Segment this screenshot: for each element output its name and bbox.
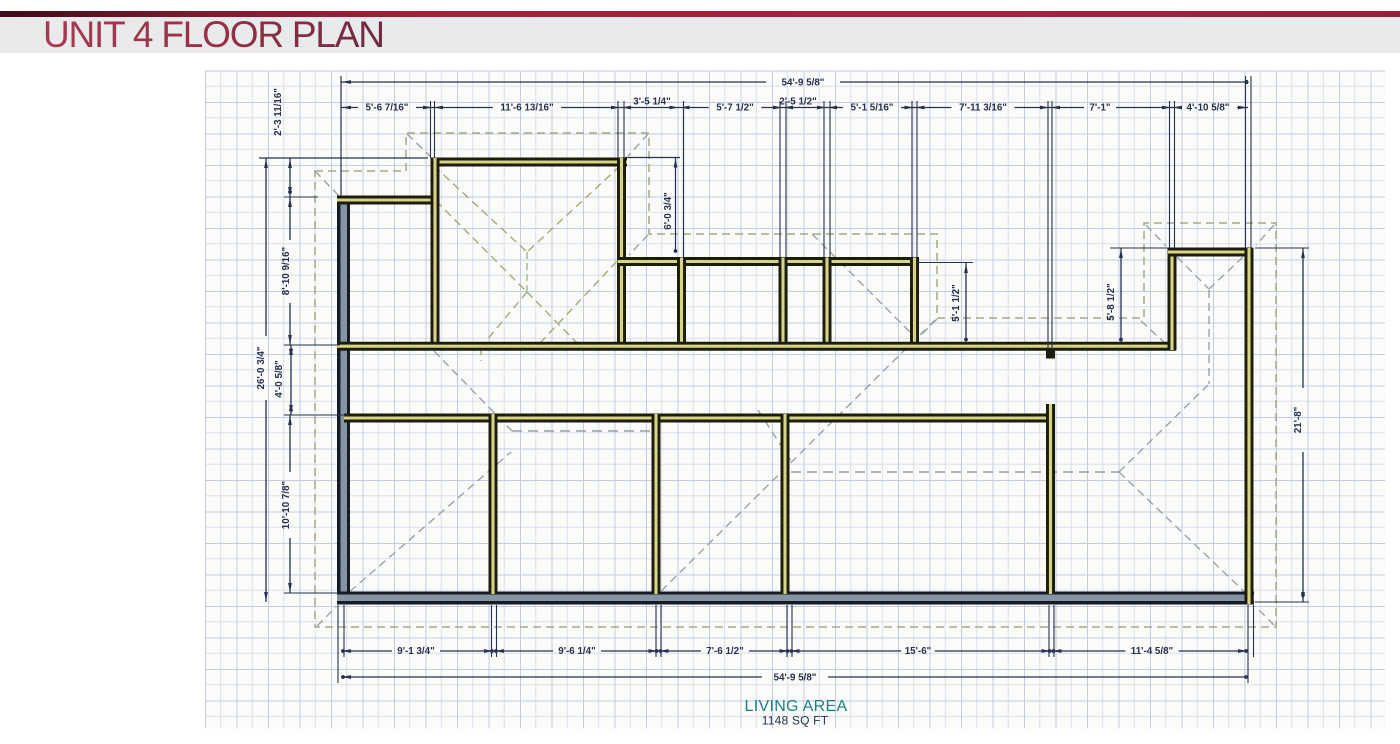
svg-text:4'-10 5/8": 4'-10 5/8" (1187, 103, 1230, 114)
svg-text:11'-4 5/8": 11'-4 5/8" (1131, 646, 1173, 657)
svg-text:15'-6": 15'-6" (905, 646, 932, 657)
svg-text:7'-6 1/2": 7'-6 1/2" (706, 646, 743, 657)
svg-text:5'-8 1/2": 5'-8 1/2" (1106, 283, 1117, 320)
svg-text:6'-0 3/4": 6'-0 3/4" (663, 192, 674, 229)
svg-text:5'-6 7/16": 5'-6 7/16" (366, 103, 409, 114)
svg-text:5'-1 5/16": 5'-1 5/16" (851, 103, 894, 114)
svg-text:2'-5 1/2": 2'-5 1/2" (779, 97, 816, 108)
svg-text:5'-1 1/2": 5'-1 1/2" (951, 284, 962, 321)
svg-text:7'-1": 7'-1" (1089, 103, 1110, 114)
svg-text:7'-11 3/16": 7'-11 3/16" (959, 103, 1007, 114)
svg-text:5'-7 1/2": 5'-7 1/2" (716, 103, 753, 114)
svg-text:1148 SQ FT: 1148 SQ FT (762, 714, 829, 728)
svg-text:8'-10 9/16": 8'-10 9/16" (281, 247, 292, 295)
svg-text:4'-0 5/8": 4'-0 5/8" (274, 360, 285, 397)
svg-text:LIVING AREA: LIVING AREA (745, 698, 848, 715)
svg-text:11'-6 13/16": 11'-6 13/16" (500, 103, 553, 114)
svg-text:2'-3 11/16": 2'-3 11/16" (273, 88, 284, 136)
svg-text:10'-10 7/8": 10'-10 7/8" (281, 481, 292, 529)
svg-text:54'-9 5/8": 54'-9 5/8" (774, 673, 817, 684)
svg-text:3'-5 1/4": 3'-5 1/4" (633, 97, 670, 108)
svg-text:9'-1 3/4": 9'-1 3/4" (397, 646, 434, 657)
svg-text:9'-6 1/4": 9'-6 1/4" (558, 646, 595, 657)
svg-text:26'-0 3/4": 26'-0 3/4" (256, 347, 267, 390)
svg-text:54'-9 5/8": 54'-9 5/8" (782, 78, 825, 89)
svg-text:21'-8": 21'-8" (1293, 407, 1304, 434)
